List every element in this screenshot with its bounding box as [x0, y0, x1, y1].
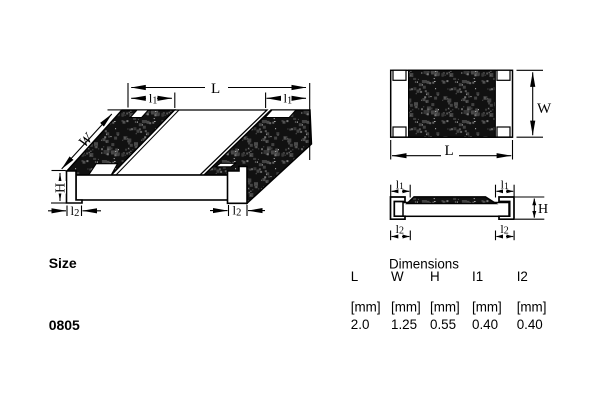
svg-text:0.40: 0.40	[517, 317, 543, 332]
svg-text:0805: 0805	[49, 317, 80, 333]
svg-text:L: L	[351, 269, 358, 284]
svg-text:L: L	[211, 81, 220, 97]
svg-text:W: W	[391, 269, 404, 284]
svg-text:W: W	[537, 101, 552, 117]
svg-text:0.40: 0.40	[472, 317, 498, 332]
svg-text:H: H	[538, 202, 548, 217]
svg-text:H: H	[430, 269, 440, 284]
svg-text:[mm]: [mm]	[430, 299, 460, 314]
svg-text:1.25: 1.25	[391, 317, 417, 332]
svg-text:0.55: 0.55	[430, 317, 456, 332]
svg-text:L: L	[445, 143, 454, 159]
svg-text:[mm]: [mm]	[517, 299, 547, 314]
svg-text:2.0: 2.0	[351, 317, 370, 332]
svg-text:I2: I2	[517, 269, 528, 284]
svg-text:I1: I1	[472, 269, 483, 284]
svg-text:[mm]: [mm]	[391, 299, 421, 314]
svg-text:[mm]: [mm]	[351, 299, 381, 314]
svg-text:Size: Size	[49, 255, 77, 271]
svg-text:H: H	[54, 183, 69, 193]
svg-text:[mm]: [mm]	[472, 299, 502, 314]
